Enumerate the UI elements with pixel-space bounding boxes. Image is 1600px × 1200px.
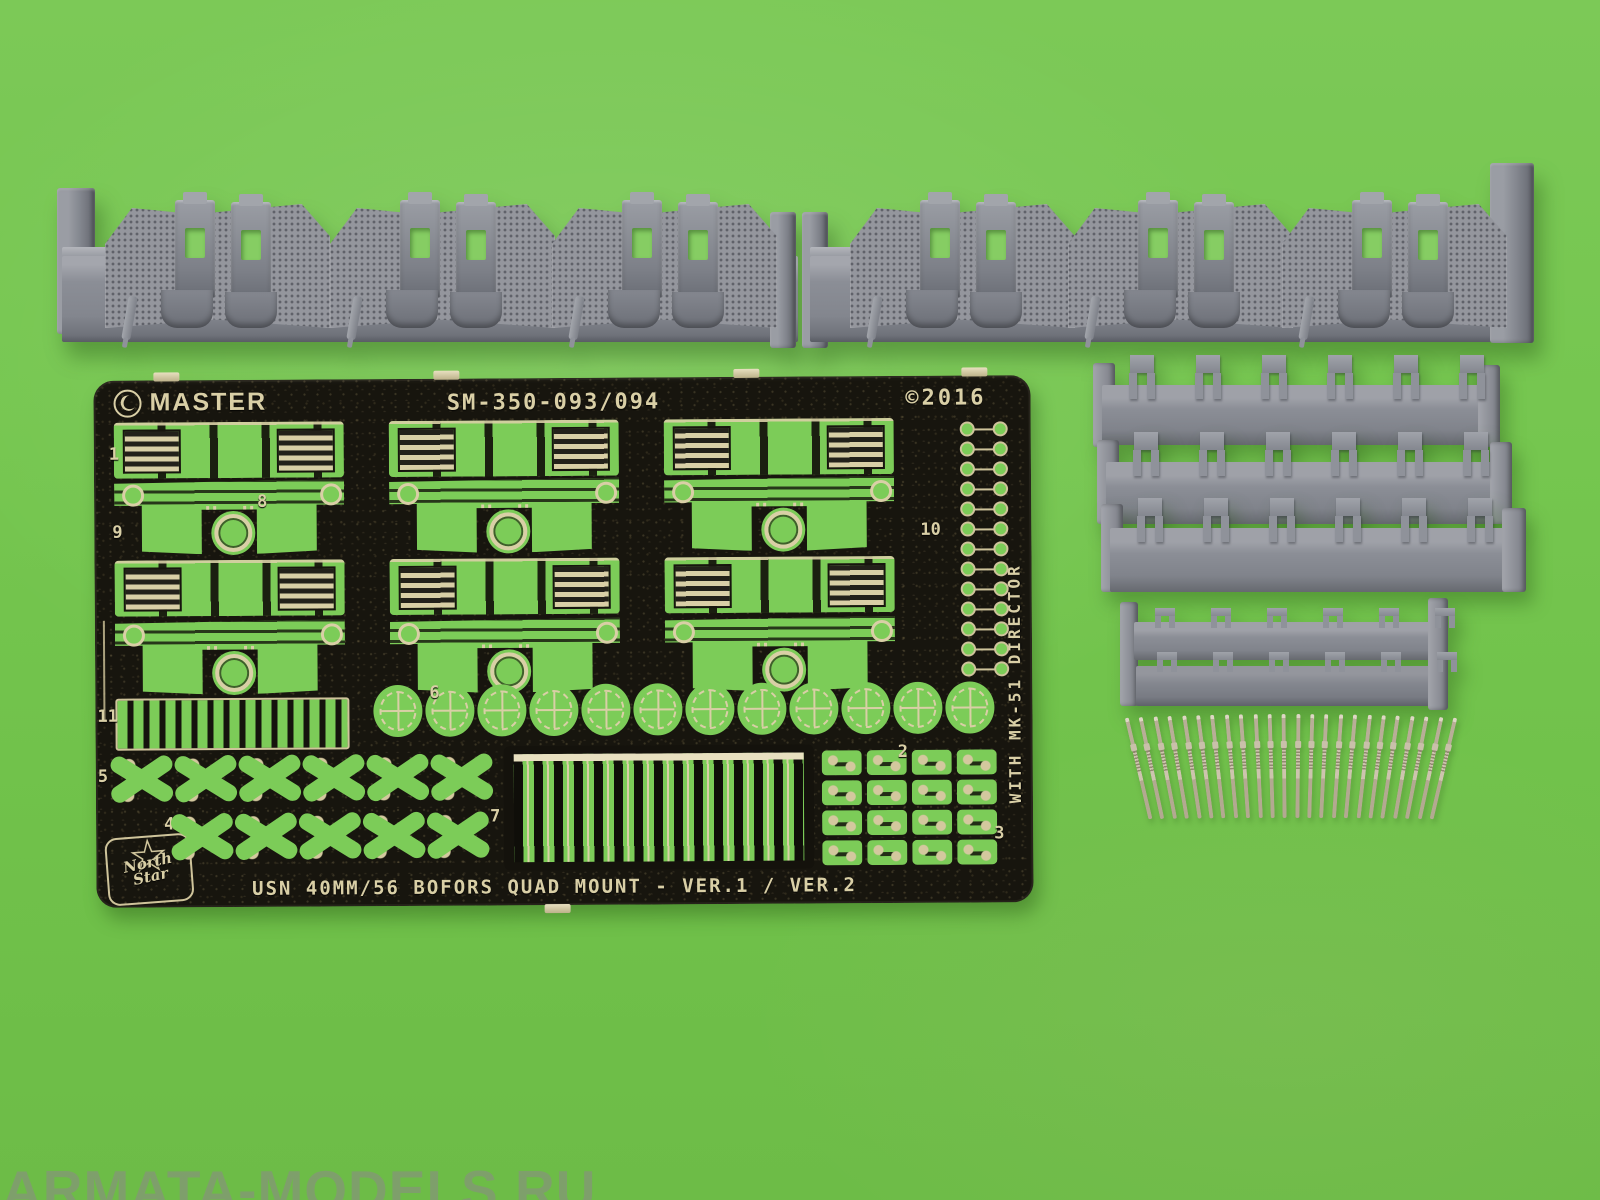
etched-part-rail: [114, 421, 344, 478]
ring-item: [477, 684, 526, 736]
spart-item: [1268, 498, 1296, 542]
gun-cradle: [456, 202, 496, 300]
etched-hinge-ring: [320, 483, 342, 505]
spart-item: [1462, 432, 1490, 476]
spart-item: [1326, 355, 1354, 399]
gun-cradle: [976, 202, 1016, 300]
spart-item: [1132, 432, 1160, 476]
gun-cradle: [1408, 202, 1448, 300]
barrel-item: [1430, 717, 1457, 819]
part-number: 5: [98, 767, 108, 787]
etched-ring-row: [373, 681, 1005, 741]
fret-tab: [433, 371, 459, 380]
gpart-item: [867, 840, 907, 865]
gun-body: [386, 290, 438, 328]
xpart-item: [110, 748, 174, 808]
part-number: 7: [490, 806, 500, 826]
spart-item: [1194, 355, 1222, 399]
gpart-item: [867, 780, 907, 805]
gpart-item: [867, 810, 907, 835]
gun-body: [225, 292, 277, 328]
photo-stage: MASTER SM-350-093/094 ©2016 WITH MK-51 D…: [0, 0, 1600, 1200]
part-number: 6: [429, 683, 439, 703]
etched-hinge-ring: [397, 483, 419, 505]
dumbbell-item: [958, 461, 1010, 477]
resin-casting-bar-right: [790, 0, 1550, 360]
gun-cradle: [622, 200, 662, 298]
fret-header: MASTER: [113, 388, 267, 418]
barrel-item: [1344, 714, 1357, 818]
part-number: 3: [994, 823, 1004, 843]
tpart-item: [1268, 652, 1290, 672]
etched-hinge-ring: [871, 620, 893, 642]
barrel-item: [1332, 714, 1343, 818]
fret-tab: [153, 372, 179, 381]
tpart-item: [1266, 608, 1288, 628]
photo-etch-fret: MASTER SM-350-093/094 ©2016 WITH MK-51 D…: [93, 375, 1033, 908]
spart-item: [1198, 432, 1226, 476]
spart-item: [1334, 498, 1362, 542]
etched-hinge-ring: [870, 480, 892, 502]
gun-mount-assembly: [1282, 192, 1507, 332]
gpart-item: [822, 780, 862, 805]
barrel-item: [1225, 714, 1238, 818]
gpart-item: [822, 750, 862, 775]
fret-title: USN 40MM/56 BOFORS QUAD MOUNT - VER.1 / …: [252, 874, 857, 900]
spart-item: [1330, 432, 1358, 476]
gpart-item: [912, 840, 952, 865]
gpart-item: [822, 810, 862, 835]
brand-name: MASTER: [149, 388, 267, 418]
stack-bar-endcap: [1502, 508, 1526, 592]
xpart-item: [298, 805, 362, 865]
tpart-item: [1156, 652, 1178, 672]
product-code: SM-350-093/094: [447, 389, 661, 415]
gpart-item: [912, 810, 952, 835]
ring-item: [529, 684, 578, 736]
gun-body: [608, 290, 660, 328]
part-number: 1: [109, 445, 119, 465]
etched-part-rail: [389, 420, 619, 477]
tpart-item: [1436, 652, 1458, 672]
dumbbell-item: [959, 581, 1011, 597]
etched-x-parts-row: [170, 804, 490, 866]
resin-stack-bar-3: [1088, 496, 1544, 600]
gun-body: [1124, 290, 1176, 328]
tpart-item: [1210, 608, 1232, 628]
tray-parts-row: [1154, 608, 1456, 628]
tpart-item: [1324, 652, 1346, 672]
fret-tab: [733, 369, 759, 378]
spart-item: [1458, 355, 1486, 399]
barrel-item: [1356, 715, 1371, 819]
fret-tab: [545, 904, 571, 913]
stack-bar-parts: [1132, 432, 1490, 476]
etched-small-parts-grid: [822, 749, 1004, 805]
spart-item: [1264, 432, 1292, 476]
gun-body: [161, 290, 213, 328]
gun-body: [450, 292, 502, 328]
dumbbell-item: [958, 521, 1010, 537]
xpart-item: [170, 806, 234, 866]
dumbbell-item: [959, 601, 1011, 617]
gun-mount-assembly: [1068, 192, 1293, 332]
watermark-text: ARMATA-MODELS.RU: [2, 1158, 596, 1200]
gun-body: [672, 292, 724, 328]
etched-part-rail: [664, 418, 894, 475]
spart-item: [1466, 498, 1494, 542]
etched-part-rail: [664, 556, 894, 613]
etched-strip-panel: [504, 744, 815, 870]
gun-body: [1188, 292, 1240, 328]
gun-mount-assembly: [850, 192, 1075, 332]
etched-part-bracket: [390, 618, 620, 693]
spart-item: [1260, 355, 1288, 399]
dumbbell-item: [959, 641, 1011, 657]
dumbbell-item: [958, 421, 1010, 437]
spart-item: [1400, 498, 1428, 542]
barrel-item: [1210, 715, 1225, 819]
gpart-item: [957, 809, 997, 834]
gun-cradle: [1352, 200, 1392, 298]
ring-item: [789, 682, 838, 734]
xpart-item: [426, 804, 490, 864]
ring-item: [841, 682, 890, 734]
barrel-item: [1307, 714, 1314, 818]
etched-hinge-ring: [122, 485, 144, 507]
tpart-item: [1154, 608, 1176, 628]
tpart-item: [1322, 608, 1344, 628]
etched-hinge-ring: [321, 623, 343, 645]
gun-body: [970, 292, 1022, 328]
ring-item: [685, 683, 734, 735]
tpart-item: [1434, 608, 1456, 628]
etched-hinge-ring: [398, 623, 420, 645]
etched-part-bracket: [664, 476, 894, 551]
etched-hinge-ring: [123, 625, 145, 647]
spart-item: [1202, 498, 1230, 542]
dumbbell-item: [959, 661, 1011, 677]
tpart-item: [1380, 652, 1402, 672]
stack-bar-parts: [1136, 498, 1494, 542]
etched-part-rail: [389, 558, 619, 615]
ring-item: [737, 683, 786, 735]
etched-hinge-ring: [672, 481, 694, 503]
gun-cradle: [678, 202, 718, 300]
resin-small-tray: [1120, 594, 1450, 716]
tpart-item: [1212, 652, 1234, 672]
gun-mount-assembly: [330, 192, 555, 332]
etched-part-bracket: [114, 479, 344, 554]
barrel-item: [1295, 714, 1300, 818]
xpart-item: [234, 806, 298, 866]
barrel-item: [1139, 717, 1164, 819]
etched-small-parts-grid: [822, 809, 1004, 865]
etched-part-bracket: [115, 619, 345, 694]
part-number: 9: [112, 523, 122, 543]
metal-barrels-fan: [1158, 714, 1434, 838]
gun-mount-assembly: [105, 192, 330, 332]
etched-part-bracket: [665, 616, 895, 691]
gun-cradle: [1138, 200, 1178, 298]
north-star-logo-text: North Star: [122, 850, 176, 888]
gun-body: [1402, 292, 1454, 328]
xpart-item: [362, 805, 426, 865]
tray-rail: [1136, 666, 1436, 706]
gpart-item: [957, 749, 997, 774]
xpart-item: [302, 747, 366, 807]
gun-cradle: [400, 200, 440, 298]
ring-item: [581, 684, 630, 736]
xpart-item: [366, 747, 430, 807]
gun-body: [1338, 290, 1390, 328]
dumbbell-item: [959, 561, 1011, 577]
barrel-item: [1239, 714, 1250, 818]
etched-part-rail: [114, 559, 344, 616]
ring-item: [893, 682, 942, 734]
dumbbell-item: [958, 501, 1010, 517]
gun-cradle: [920, 200, 960, 298]
gun-body: [906, 290, 958, 328]
etched-slat-strip: [115, 697, 349, 750]
barrel-item: [1125, 717, 1152, 819]
etched-hinge-ring: [673, 621, 695, 643]
barrel-item: [1253, 714, 1262, 818]
gun-cradle: [231, 202, 271, 300]
resin-casting-bar-left: [0, 0, 810, 360]
xpart-item: [238, 748, 302, 808]
part-number: 11: [97, 707, 118, 727]
gun-mount-assembly: [552, 192, 777, 332]
dumbbell-item: [958, 441, 1010, 457]
copyright-text: ©2016: [905, 385, 986, 410]
xpart-item: [174, 748, 238, 808]
etched-dumbbell-column: [958, 421, 1012, 677]
ring-item: [945, 681, 994, 733]
gpart-item: [822, 840, 862, 865]
gpart-item: [957, 839, 997, 864]
spart-item: [1128, 355, 1156, 399]
etched-hinge-ring: [596, 622, 618, 644]
part-number: 8: [257, 492, 267, 512]
master-logo-icon: [113, 389, 141, 417]
spart-item: [1392, 355, 1420, 399]
gun-cradle: [1194, 202, 1234, 300]
gpart-item: [957, 779, 997, 804]
dumbbell-item: [958, 481, 1010, 497]
spart-item: [1136, 498, 1164, 542]
spart-item: [1396, 432, 1424, 476]
gun-cradle: [175, 200, 215, 298]
fret-tab: [961, 367, 987, 376]
part-number: 2: [898, 742, 908, 762]
dumbbell-item: [958, 541, 1010, 557]
etched-x-parts-row: [110, 746, 494, 808]
ring-item: [633, 683, 682, 735]
barrel-item: [1320, 714, 1329, 818]
ring-item: [373, 685, 422, 737]
etched-hinge-ring: [595, 482, 617, 504]
xpart-item: [430, 746, 494, 806]
barrel-item: [1268, 714, 1275, 818]
part-number: 10: [920, 520, 941, 540]
dumbbell-item: [959, 621, 1011, 637]
etched-part-bracket: [389, 478, 619, 553]
tpart-item: [1378, 608, 1400, 628]
stack-bar-parts: [1128, 355, 1486, 399]
gpart-item: [912, 750, 952, 775]
barrel-item: [1282, 714, 1287, 818]
gpart-item: [912, 780, 952, 805]
tray-parts-row: [1156, 652, 1458, 672]
